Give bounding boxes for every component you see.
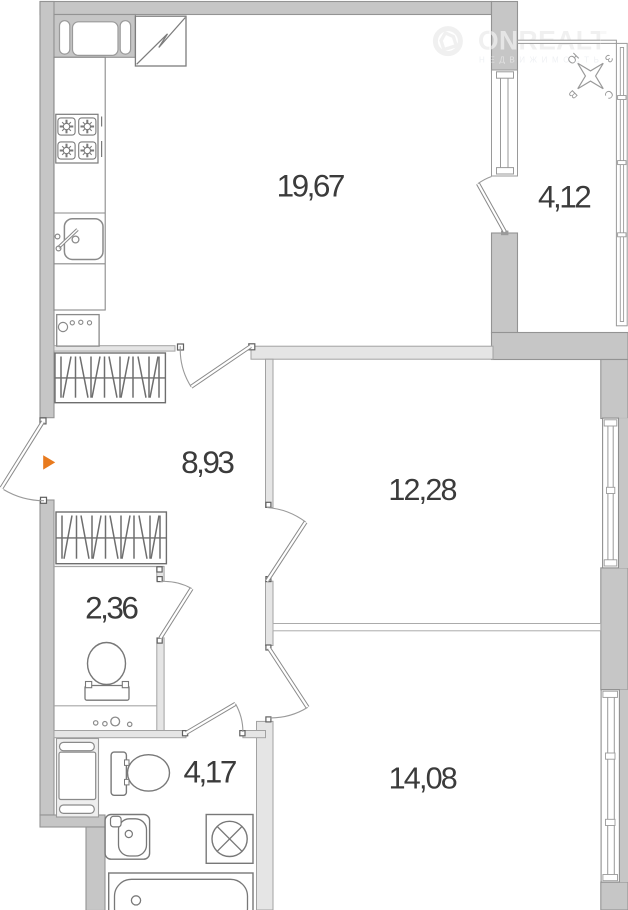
svg-text:19,67: 19,67 bbox=[277, 168, 344, 204]
svg-text:4,12: 4,12 bbox=[538, 178, 590, 214]
svg-text:4,17: 4,17 bbox=[184, 753, 236, 789]
svg-text:8,93: 8,93 bbox=[181, 444, 234, 480]
svg-text:14,08: 14,08 bbox=[389, 762, 457, 796]
svg-text:2,36: 2,36 bbox=[85, 590, 138, 626]
svg-text:12,28: 12,28 bbox=[388, 473, 456, 507]
